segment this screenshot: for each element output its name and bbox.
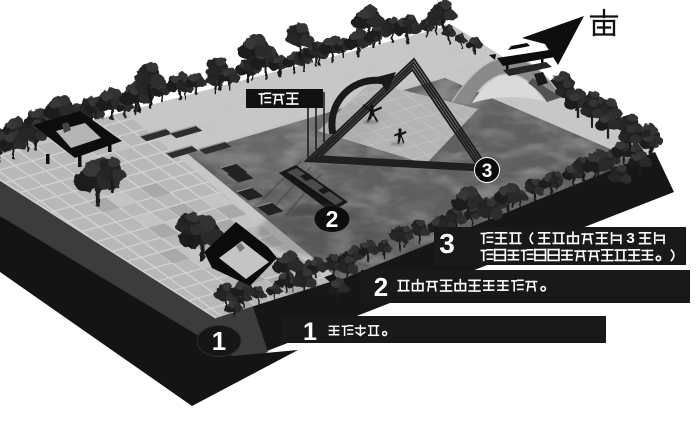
svg-text:2: 2 xyxy=(374,272,388,302)
svg-text:2: 2 xyxy=(326,206,339,232)
svg-text:3: 3 xyxy=(439,228,455,259)
svg-text:1: 1 xyxy=(303,318,317,346)
svg-text:1: 1 xyxy=(212,326,226,356)
svg-text:3: 3 xyxy=(482,161,493,182)
svg-text:3: 3 xyxy=(626,230,634,247)
